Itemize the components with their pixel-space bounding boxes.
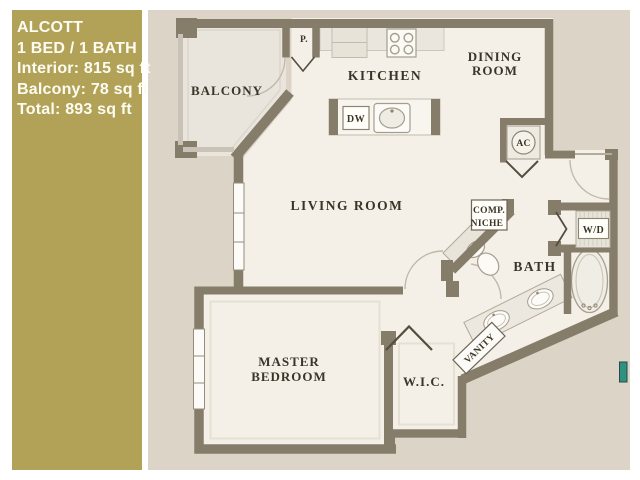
label-wic: W.I.C. [403, 374, 445, 389]
teal-marker [620, 362, 628, 382]
label-pantry: P. [300, 35, 308, 45]
floor-plan-drawing: BALCONY KITCHEN DINING ROOM LIVING ROOM … [0, 0, 640, 480]
bedroom-window [194, 329, 205, 409]
niche-pillar [441, 260, 453, 281]
label-balcony: BALCONY [191, 83, 263, 98]
wd-stub-bottom [548, 241, 561, 256]
label-washer-dryer: W/D [583, 225, 605, 236]
label-kitchen: KITCHEN [348, 68, 422, 83]
label-dishwasher: DW [347, 114, 365, 125]
kitchen-faucet [390, 109, 393, 112]
floor-plan-page: ALCOTT 1 BED / 1 BATH Interior: 815 sq f… [0, 0, 640, 480]
living-window [234, 183, 245, 270]
bathtub [572, 250, 608, 313]
label-master-2: BEDROOM [251, 369, 327, 384]
island-end-left [329, 99, 338, 135]
label-comp-niche-1: COMP. [473, 206, 505, 216]
label-dining-2: ROOM [472, 63, 518, 78]
wd-stub-top [548, 200, 561, 215]
bath-door-pillar [446, 281, 459, 297]
label-dining-1: DINING [468, 49, 522, 64]
label-bath: BATH [513, 259, 556, 274]
label-living: LIVING ROOM [291, 198, 404, 213]
label-ac: AC [516, 139, 530, 149]
label-comp-niche-2: NICHE [471, 219, 504, 229]
island-end-right [431, 99, 440, 135]
label-master-1: MASTER [258, 354, 320, 369]
